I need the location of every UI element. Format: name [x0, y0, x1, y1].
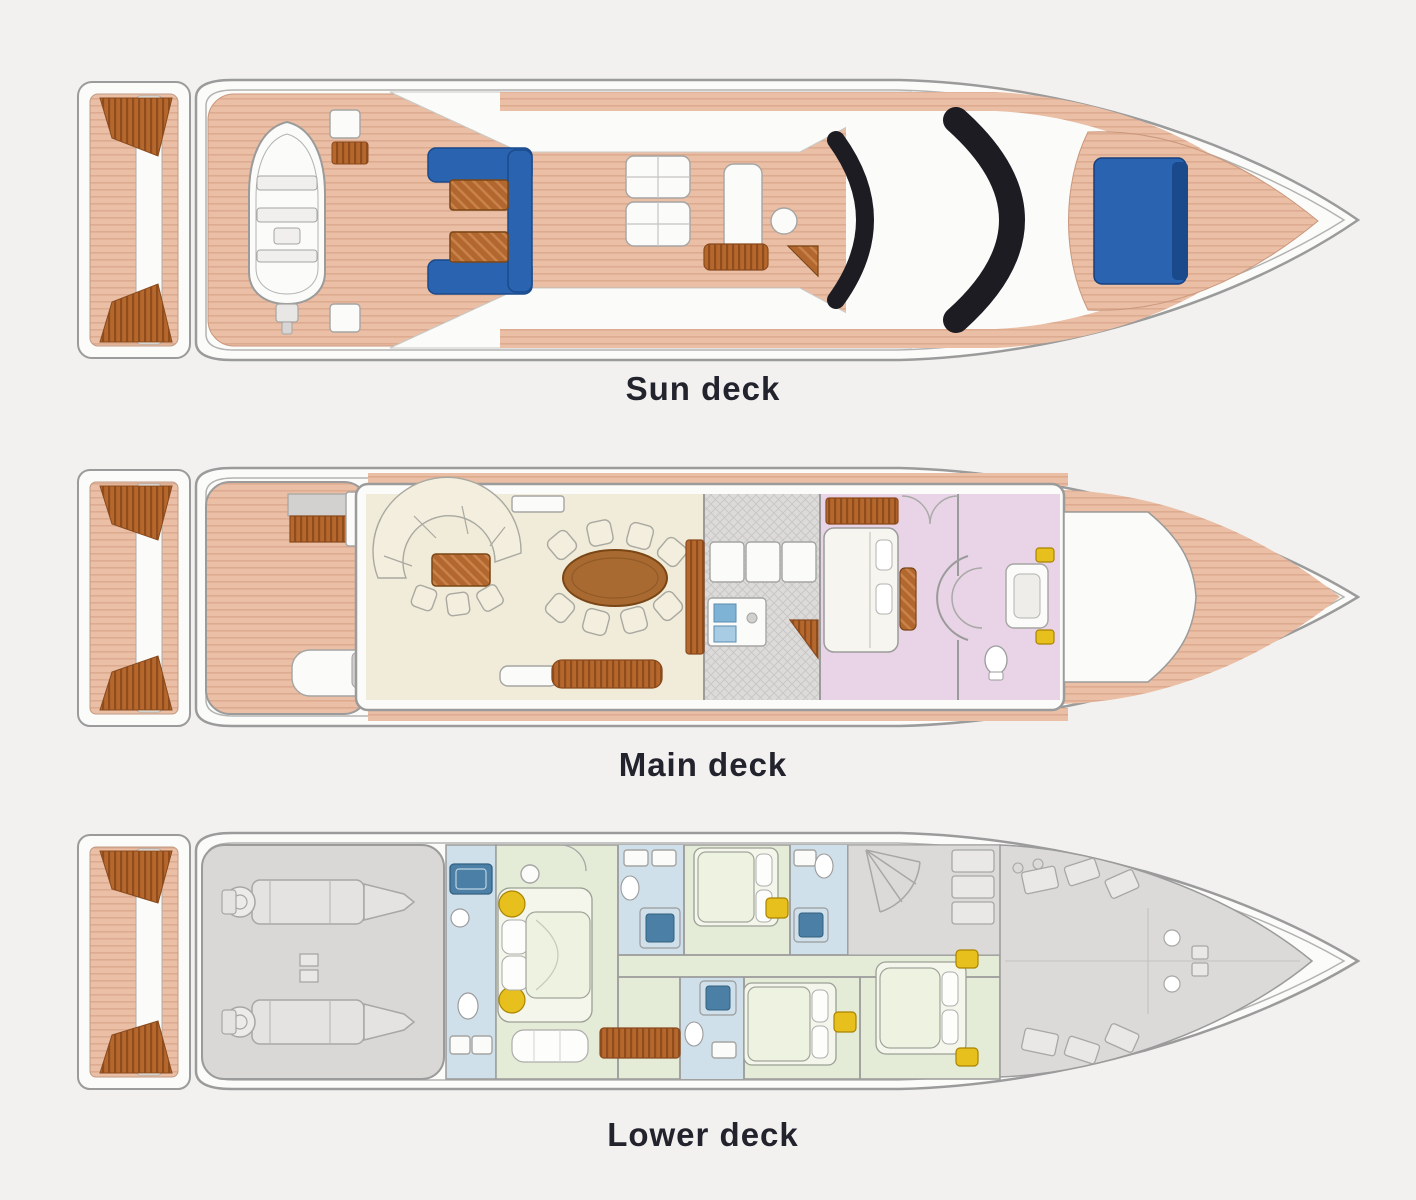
crew-toilet: [1164, 930, 1180, 946]
sun-deck-plan: [78, 80, 1358, 360]
guest-cabin: [694, 848, 788, 926]
sideboard: [500, 666, 558, 686]
yacht-deck-plans-page: Sun deck: [0, 0, 1416, 1200]
bed-lamp: [499, 987, 525, 1013]
crew-toilet: [1164, 976, 1180, 992]
deck-hatch: [330, 110, 360, 138]
toilet: [985, 646, 1007, 674]
pillow: [502, 956, 528, 990]
coffee-table: [432, 554, 490, 586]
sideboard-teak: [552, 660, 662, 688]
bar-stool: [771, 208, 797, 234]
pillow: [812, 1026, 828, 1058]
galley-floor: [704, 494, 820, 700]
laundry: [450, 1036, 470, 1054]
stern-platform: [78, 82, 190, 358]
bed-lamp: [766, 898, 788, 918]
deck-plans-drawing: Sun deck: [0, 0, 1416, 1200]
crew-quarters: [1000, 845, 1312, 1077]
pillow: [812, 990, 828, 1022]
sideboard: [512, 496, 564, 512]
aft-deck-stairs: [288, 492, 358, 546]
dresser-teak: [826, 498, 898, 524]
teak-table: [450, 180, 508, 210]
dresser-teak: [600, 1028, 680, 1058]
light-fixture: [1036, 630, 1054, 644]
sun-deck-label: Sun deck: [626, 370, 781, 407]
sink: [451, 909, 469, 927]
pillow: [876, 540, 892, 570]
pillow: [942, 1010, 958, 1044]
light-fixture: [1036, 548, 1054, 562]
pillow: [876, 584, 892, 614]
teak-deck-box: [332, 142, 368, 164]
bow-sunpad: [1094, 158, 1188, 284]
bed-bench: [900, 568, 916, 630]
main-deck-label: Main deck: [619, 746, 788, 783]
pillow: [756, 854, 772, 886]
laundry: [472, 1036, 492, 1054]
stool: [521, 865, 539, 883]
bed-lamp: [499, 891, 525, 917]
settee: [512, 1030, 588, 1062]
engine-room: [202, 845, 444, 1079]
pillow: [502, 920, 528, 954]
lower-deck-plan: [78, 833, 1358, 1089]
bar-counter: [704, 244, 768, 270]
stern-platform: [78, 470, 190, 726]
bed-lamp: [956, 1048, 978, 1066]
main-deck-plan: [78, 468, 1358, 726]
outboard-motor: [276, 304, 298, 322]
bed-lamp: [834, 1012, 856, 1032]
deck-hatch: [330, 304, 360, 332]
vip-cabin: [876, 950, 978, 1066]
staircase-landing: [848, 845, 1000, 955]
bed-lamp: [956, 950, 978, 968]
toilet: [458, 993, 478, 1019]
aft-bathroom: [446, 845, 496, 1079]
teak-table: [450, 232, 508, 262]
lower-deck-label: Lower deck: [607, 1116, 799, 1153]
stern-platform: [78, 835, 190, 1089]
pillow: [942, 972, 958, 1006]
cabinet-teak: [686, 540, 704, 654]
